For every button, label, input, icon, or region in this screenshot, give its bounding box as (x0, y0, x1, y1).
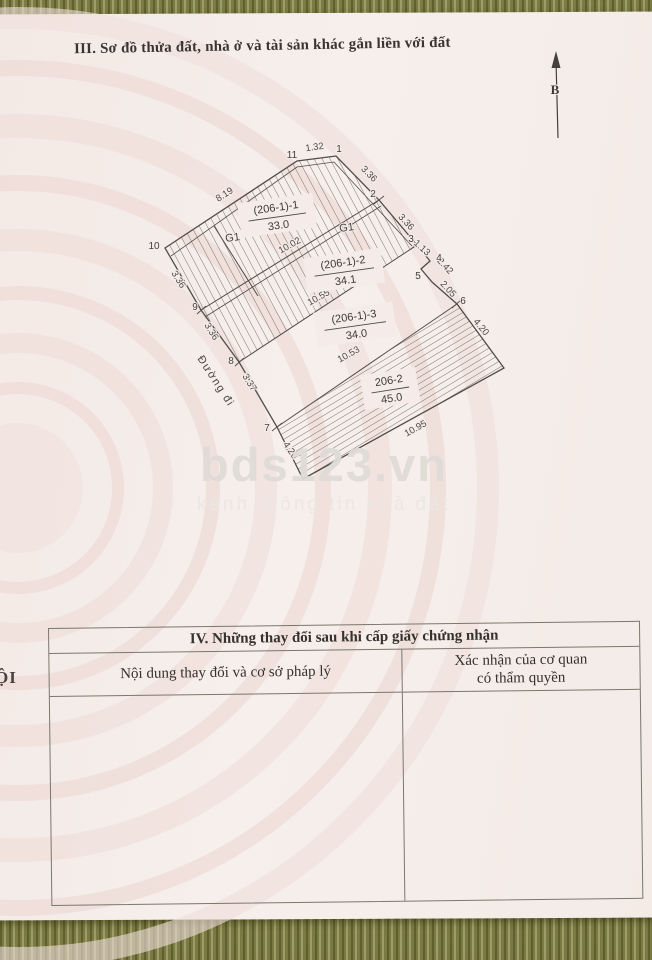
watermark-tagline: kênh thông tin nhà đất (0, 495, 648, 514)
vertex-number: 8 (228, 356, 234, 367)
vertex-number: 7 (264, 423, 270, 434)
vertex-number: 9 (192, 302, 198, 313)
watermark: bds123.vn kênh thông tin nhà đất (0, 441, 648, 514)
vertex-number: 2 (370, 189, 376, 200)
cell-content-empty (50, 693, 406, 905)
page-edge-text-fragment: ỘI (0, 668, 17, 688)
col-header-content: Nội dung thay đổi và cơ sở pháp lý (49, 650, 402, 696)
vertex-number: 10 (148, 241, 160, 252)
vertex-number: 4 (436, 253, 442, 264)
vertex-number: 3 (408, 234, 414, 245)
cell-confirmation-empty (403, 690, 643, 901)
north-label: B (551, 82, 560, 97)
vertex-number: 6 (460, 296, 466, 307)
dimension-label: 1.32 (305, 141, 325, 154)
house-type-label: G1 (338, 221, 354, 235)
vertex-number: 5 (415, 271, 421, 282)
table-body-row (50, 690, 642, 905)
watermark-brand: bds123.vn (0, 441, 648, 488)
section4-table: IV. Những thay đổi sau khi cấp giấy chứn… (48, 621, 643, 906)
north-arrow-head (552, 51, 561, 68)
vertex-number: 11 (287, 150, 298, 161)
col-header-confirmation: Xác nhận của cơ quan có thẩm quyền (402, 647, 639, 692)
table-header-row: Nội dung thay đổi và cơ sở pháp lý Xác n… (49, 647, 639, 697)
vertex-number: 1 (336, 144, 342, 155)
house-type-label: G1 (224, 231, 240, 245)
